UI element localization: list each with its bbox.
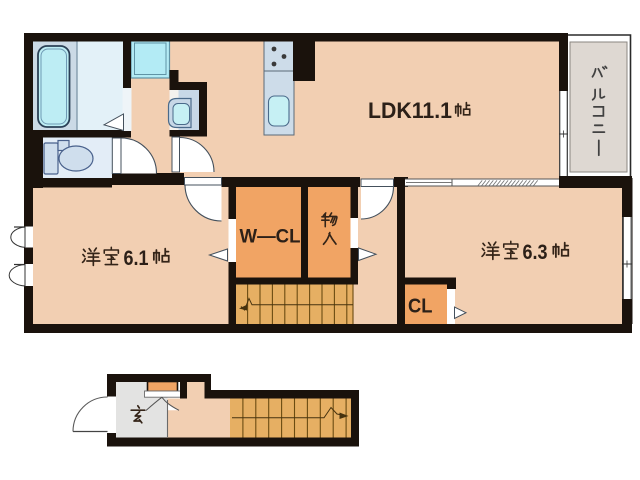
svg-text:6.3: 6.3 <box>523 240 548 264</box>
svg-text:W—CL: W—CL <box>240 226 301 248</box>
svg-text:LDK11.1: LDK11.1 <box>368 98 452 123</box>
svg-text:CL: CL <box>408 296 433 318</box>
svg-text:6.1: 6.1 <box>124 246 149 270</box>
